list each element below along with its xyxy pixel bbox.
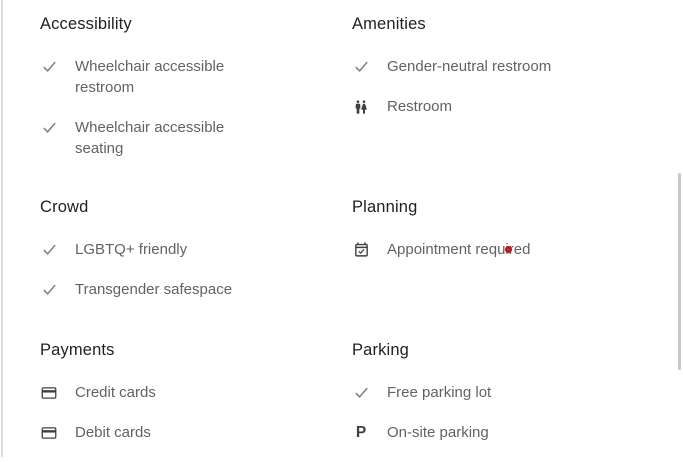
check-icon — [352, 382, 370, 403]
attribute-label: Gender-neutral restroom — [387, 56, 551, 77]
attribute-label: Restroom — [387, 96, 452, 117]
attribute-item: Transgender safespace — [40, 279, 352, 300]
attribute-label-line: restroom — [75, 77, 224, 98]
attribute-list: LGBTQ+ friendly Transgender safespace — [40, 239, 352, 300]
attribute-section: Payments Credit cards Debit cards — [40, 339, 352, 462]
section-title: Crowd — [40, 196, 352, 218]
attribute-item: Wheelchair accessibleseating — [40, 117, 352, 159]
attribute-label-line: On-site parking — [387, 422, 489, 443]
attribute-list: Gender-neutral restroom Restroom — [352, 56, 643, 117]
attribute-list: Appointment required — [352, 239, 643, 260]
attribute-item: Gender-neutral restroom — [352, 56, 643, 77]
scrollbar-thumb[interactable] — [678, 173, 681, 370]
check-icon — [40, 117, 58, 138]
attribute-label-line: Gender-neutral restroom — [387, 56, 551, 77]
attributes-grid: Accessibility Wheelchair accessiblerestr… — [40, 13, 643, 462]
attribute-label-line: Debit cards — [75, 422, 151, 443]
credit-card-icon — [40, 382, 58, 403]
section-title: Amenities — [352, 13, 643, 35]
attribute-list: Free parking lot P On-site parking — [352, 382, 643, 443]
attribute-label-line: Wheelchair accessible — [75, 56, 224, 77]
attribute-label: Free parking lot — [387, 382, 491, 403]
attribute-section: Planning Appointment required — [352, 196, 643, 339]
attribute-item: Debit cards — [40, 422, 352, 443]
attribute-item: Wheelchair accessiblerestroom — [40, 56, 352, 98]
attribute-label-line: seating — [75, 138, 224, 159]
attribute-label-line: Credit cards — [75, 382, 156, 403]
attribute-item: Restroom — [352, 96, 643, 117]
attribute-item: Free parking lot — [352, 382, 643, 403]
check-icon — [352, 56, 370, 77]
section-title: Payments — [40, 339, 352, 361]
attribute-label-line: Wheelchair accessible — [75, 117, 224, 138]
red-click-indicator-dot — [505, 246, 512, 253]
attribute-label-line: Restroom — [387, 96, 452, 117]
attribute-item: Credit cards — [40, 382, 352, 403]
attribute-label: Wheelchair accessibleseating — [75, 117, 224, 159]
attribute-item: P On-site parking — [352, 422, 643, 443]
attribute-label-line: Free parking lot — [387, 382, 491, 403]
check-icon — [40, 239, 58, 260]
section-title: Parking — [352, 339, 643, 361]
attribute-section: Accessibility Wheelchair accessiblerestr… — [40, 13, 352, 196]
parking-p-icon: P — [352, 422, 370, 443]
attribute-label: Transgender safespace — [75, 279, 232, 300]
attribute-section: Amenities Gender-neutral restroom Restro… — [352, 13, 643, 196]
attribute-label-line: Transgender safespace — [75, 279, 232, 300]
attribute-label-line: LGBTQ+ friendly — [75, 239, 187, 260]
attribute-label: LGBTQ+ friendly — [75, 239, 187, 260]
place-attributes-panel: Accessibility Wheelchair accessiblerestr… — [0, 0, 683, 457]
attribute-label: On-site parking — [387, 422, 489, 443]
attribute-section: Crowd LGBTQ+ friendly Transgender safesp… — [40, 196, 352, 339]
panel-left-border — [1, 0, 3, 457]
credit-card-icon — [40, 422, 58, 443]
attribute-section: Parking Free parking lot P On-site parki… — [352, 339, 643, 462]
attribute-list: Credit cards Debit cards — [40, 382, 352, 443]
check-icon — [40, 279, 58, 300]
attribute-label: Credit cards — [75, 382, 156, 403]
attribute-item: Appointment required — [352, 239, 643, 260]
calendar-check-icon — [352, 239, 370, 260]
attribute-label: Debit cards — [75, 422, 151, 443]
section-title: Accessibility — [40, 13, 352, 35]
parking-p-glyph: P — [356, 425, 366, 441]
section-title: Planning — [352, 196, 643, 218]
attribute-item: LGBTQ+ friendly — [40, 239, 352, 260]
attribute-list: Wheelchair accessiblerestroom Wheelchair… — [40, 56, 352, 159]
attribute-label: Wheelchair accessiblerestroom — [75, 56, 224, 98]
check-icon — [40, 56, 58, 77]
restroom-icon — [352, 96, 370, 117]
